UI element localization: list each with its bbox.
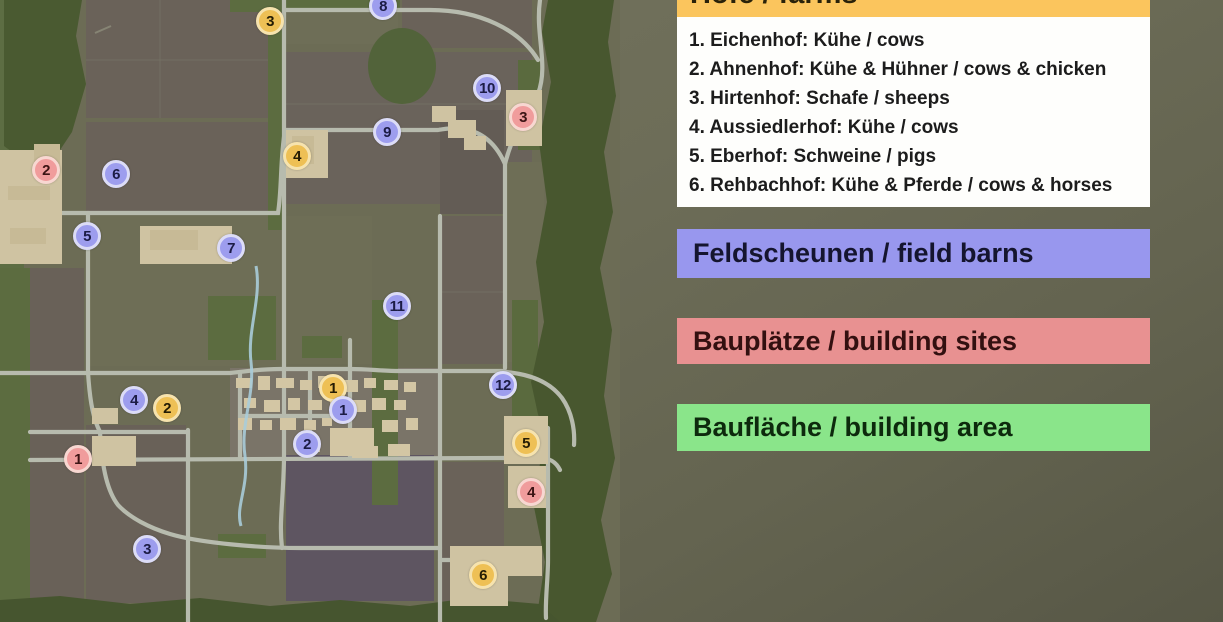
map-marker-site-1: 1: [64, 445, 92, 473]
map-marker-barn-7: 7: [217, 234, 245, 262]
legend-building-sites-label: Bauplätze / building sites: [693, 326, 1017, 357]
game-map: 1234561234567891011121234: [0, 0, 660, 622]
legend-farms-list: 1. Eichenhof: Kühe / cows2. Ahnenhof: Kü…: [677, 17, 1150, 207]
map-marker-barn-4: 4: [120, 386, 148, 414]
farm-list-item: 5. Eberhof: Schweine / pigs: [689, 142, 1150, 171]
map-marker-barn-3: 3: [133, 535, 161, 563]
map-marker-site-3: 3: [509, 103, 537, 131]
legend-field-barns-label: Feldscheunen / field barns: [693, 238, 1034, 269]
map-marker-barn-10: 10: [473, 74, 501, 102]
legend-building-area: Baufläche / building area: [677, 404, 1150, 451]
legend-building-area-label: Baufläche / building area: [693, 412, 1013, 443]
map-marker-farm-3: 3: [256, 7, 284, 35]
legend-field-barns: Feldscheunen / field barns: [677, 229, 1150, 278]
map-marker-barn-6: 6: [102, 160, 130, 188]
screenshot-root: 1234561234567891011121234 Höfe / farms 1…: [0, 0, 1223, 622]
map-marker-site-4: 4: [517, 478, 545, 506]
farm-list-item: 6. Rehbachhof: Kühe & Pferde / cows & ho…: [689, 171, 1150, 200]
map-marker-barn-2: 2: [293, 430, 321, 458]
legend-farms-header: Höfe / farms: [677, 0, 1150, 17]
map-marker-farm-2: 2: [153, 394, 181, 422]
map-marker-barn-12: 12: [489, 371, 517, 399]
legend-building-sites: Bauplätze / building sites: [677, 318, 1150, 364]
map-marker-barn-11: 11: [383, 292, 411, 320]
map-marker-barn-5: 5: [73, 222, 101, 250]
map-marker-farm-4: 4: [283, 142, 311, 170]
map-marker-barn-9: 9: [373, 118, 401, 146]
map-markers-layer: 1234561234567891011121234: [0, 0, 660, 622]
map-marker-farm-5: 5: [512, 429, 540, 457]
map-marker-barn-1: 1: [329, 396, 357, 424]
map-marker-farm-6: 6: [469, 561, 497, 589]
farm-list-item: 1. Eichenhof: Kühe / cows: [689, 26, 1150, 55]
map-marker-site-2: 2: [32, 156, 60, 184]
legend-farms-title: Höfe / farms: [690, 0, 858, 11]
farm-list-item: 3. Hirtenhof: Schafe / sheeps: [689, 84, 1150, 113]
farm-list-item: 4. Aussiedlerhof: Kühe / cows: [689, 113, 1150, 142]
map-marker-barn-8: 8: [369, 0, 397, 20]
farm-list-item: 2. Ahnenhof: Kühe & Hühner / cows & chic…: [689, 55, 1150, 84]
